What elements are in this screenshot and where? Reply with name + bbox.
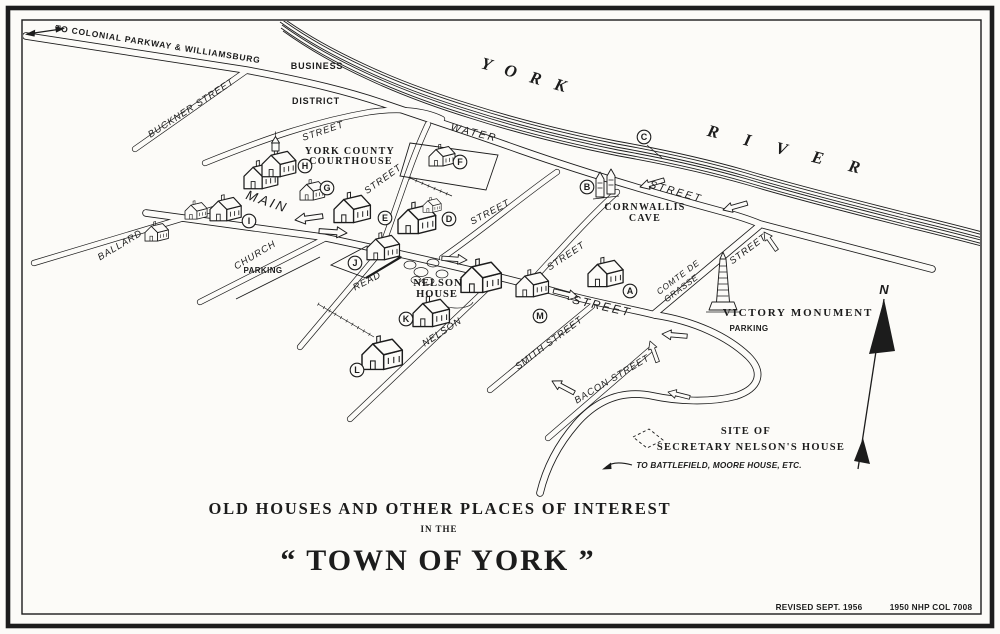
victory-monument-label: VICTORY MONUMENT	[723, 307, 873, 319]
svg-text:I: I	[248, 216, 251, 226]
map-title-line2: IN THE	[420, 524, 457, 534]
business-label: BUSINESS	[291, 61, 343, 71]
north-label: N	[879, 282, 889, 297]
parking-label-church: PARKING	[243, 266, 282, 275]
marker-g: G	[320, 181, 334, 195]
marker-f: F	[453, 155, 467, 169]
svg-text:D: D	[446, 214, 453, 224]
marker-c: C	[637, 130, 651, 144]
marker-e: E	[378, 211, 392, 225]
cornwallis-label-1: CORNWALLIS	[604, 202, 685, 213]
svg-text:L: L	[354, 365, 360, 375]
svg-text:B: B	[584, 182, 591, 192]
marker-h: H	[298, 159, 312, 173]
svg-text:E: E	[382, 213, 388, 223]
svg-text:A: A	[627, 286, 634, 296]
courthouse-label-2: COURTHOUSE	[309, 156, 393, 167]
nelson-house-label-2: HOUSE	[416, 289, 458, 300]
marker-k: K	[399, 312, 413, 326]
svg-text:F: F	[457, 157, 463, 167]
cornwallis-label-2: CAVE	[629, 213, 661, 224]
site-label-1: SITE OF	[721, 426, 771, 437]
map-title-line1: OLD HOUSES AND OTHER PLACES OF INTEREST	[209, 499, 672, 518]
district-label: DISTRICT	[292, 96, 340, 106]
revised-date: REVISED SEPT. 1956	[776, 603, 863, 612]
marker-l: L	[350, 363, 364, 377]
map-title-line3: “ TOWN OF YORK ”	[280, 544, 595, 577]
marker-i: I	[242, 214, 256, 228]
marker-a: A	[623, 284, 637, 298]
svg-text:H: H	[302, 161, 309, 171]
svg-text:C: C	[641, 132, 648, 142]
catalog-number: 1950 NHP COL 7008	[890, 603, 973, 612]
nelson-house-label-1: NELSON	[413, 278, 462, 289]
marker-b: B	[580, 180, 594, 194]
svg-text:K: K	[403, 314, 410, 324]
map-page: N TO COLONIAL PARKWAY & WILLIAMSBURG BUS…	[0, 0, 1000, 634]
site-label-2: SECRETARY NELSON'S HOUSE	[657, 442, 845, 453]
svg-text:J: J	[352, 258, 357, 268]
marker-j: J	[348, 256, 362, 270]
svg-text:M: M	[536, 311, 544, 321]
to-battlefield-label: TO BATTLEFIELD, MOORE HOUSE, ETC.	[636, 461, 802, 470]
marker-m: M	[533, 309, 547, 323]
map-canvas: N TO COLONIAL PARKWAY & WILLIAMSBURG BUS…	[0, 0, 1000, 634]
parking-label-victory: PARKING	[729, 324, 768, 333]
marker-d: D	[442, 212, 456, 226]
svg-text:G: G	[323, 183, 330, 193]
